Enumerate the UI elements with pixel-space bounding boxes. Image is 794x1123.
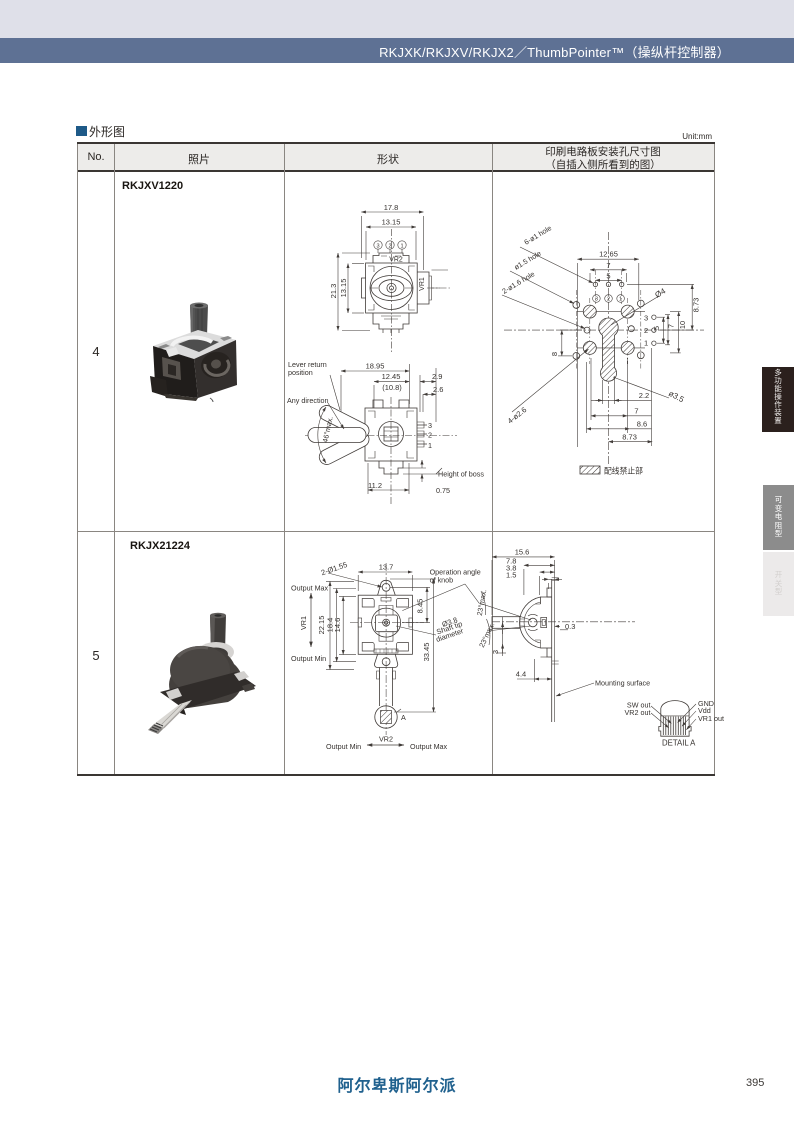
svg-text:2.6: 2.6 <box>433 385 443 394</box>
svg-text:2.2: 2.2 <box>639 391 649 400</box>
svg-text:6-ø1 hole: 6-ø1 hole <box>522 223 553 246</box>
svg-text:8: 8 <box>550 352 559 356</box>
svg-text:7: 7 <box>634 407 638 416</box>
svg-text:Ø4: Ø4 <box>653 286 667 299</box>
svg-text:DETAIL A: DETAIL A <box>662 739 696 748</box>
svg-text:Output Max: Output Max <box>410 742 448 751</box>
svg-text:8.6: 8.6 <box>637 420 647 429</box>
svg-text:7: 7 <box>667 324 676 328</box>
svg-text:ø1.5 hole: ø1.5 hole <box>512 249 542 272</box>
svg-text:17.8: 17.8 <box>384 203 399 212</box>
svg-text:position: position <box>288 368 313 377</box>
svg-text:1: 1 <box>619 297 622 303</box>
svg-text:Any direction: Any direction <box>287 396 329 405</box>
svg-text:11.2: 11.2 <box>368 481 382 490</box>
svg-text:0.75: 0.75 <box>436 486 450 495</box>
svg-text:5: 5 <box>652 326 661 330</box>
svg-text:1: 1 <box>428 441 432 450</box>
svg-text:Output Max: Output Max <box>291 584 329 593</box>
svg-text:(10.8): (10.8) <box>382 383 402 392</box>
svg-text:Output Min: Output Min <box>291 654 326 663</box>
svg-text:3: 3 <box>428 421 432 430</box>
svg-text:5: 5 <box>606 272 610 281</box>
svg-text:3: 3 <box>595 297 598 303</box>
svg-text:Output Min: Output Min <box>326 742 361 751</box>
svg-text:2: 2 <box>428 431 432 440</box>
svg-text:12.65: 12.65 <box>599 250 618 259</box>
svg-text:VR2: VR2 <box>379 735 393 744</box>
svg-text:13.7: 13.7 <box>379 563 394 572</box>
svg-text:10: 10 <box>678 321 687 329</box>
svg-text:2: 2 <box>388 243 391 249</box>
svg-text:A: A <box>401 713 406 722</box>
svg-text:8.73: 8.73 <box>622 432 637 441</box>
svg-text:13.15: 13.15 <box>339 279 348 298</box>
svg-text:2: 2 <box>607 297 610 303</box>
svg-text:VR1: VR1 <box>419 277 426 291</box>
svg-text:1.5: 1.5 <box>506 571 516 580</box>
svg-text:2-ø1.6 hole: 2-ø1.6 hole <box>500 269 536 295</box>
svg-text:VR1: VR1 <box>299 616 308 630</box>
svg-text:33.45: 33.45 <box>422 643 431 662</box>
svg-text:8.45: 8.45 <box>416 599 425 614</box>
svg-text:2: 2 <box>644 326 648 335</box>
svg-text:ø3.5: ø3.5 <box>667 389 686 405</box>
svg-text:7: 7 <box>606 261 610 270</box>
svg-text:3: 3 <box>376 243 379 249</box>
svg-text:1: 1 <box>644 339 648 348</box>
svg-text:8.73: 8.73 <box>692 298 701 313</box>
svg-text:VR1 out: VR1 out <box>698 714 724 723</box>
svg-text:Mounting surface: Mounting surface <box>595 679 650 688</box>
svg-text:Height of boss: Height of boss <box>438 470 484 479</box>
svg-text:23°max.: 23°max. <box>475 589 488 617</box>
svg-text:18.95: 18.95 <box>366 362 385 371</box>
svg-text:15.6: 15.6 <box>515 547 530 556</box>
svg-text:14.6: 14.6 <box>333 618 342 633</box>
svg-text:VR2 out: VR2 out <box>625 708 651 717</box>
svg-text:VR2: VR2 <box>389 257 403 264</box>
svg-text:2.9: 2.9 <box>432 372 442 381</box>
svg-text:配线禁止部: 配线禁止部 <box>604 466 643 476</box>
svg-text:0.3: 0.3 <box>565 622 575 631</box>
svg-text:21.3: 21.3 <box>329 284 338 299</box>
svg-text:1: 1 <box>400 243 403 249</box>
svg-text:12.45: 12.45 <box>382 372 401 381</box>
svg-text:3: 3 <box>644 314 648 323</box>
svg-text:of knob: of knob <box>430 576 454 585</box>
svg-text:13.15: 13.15 <box>382 218 401 227</box>
svg-text:3: 3 <box>491 650 500 654</box>
svg-text:4.4: 4.4 <box>516 670 526 679</box>
